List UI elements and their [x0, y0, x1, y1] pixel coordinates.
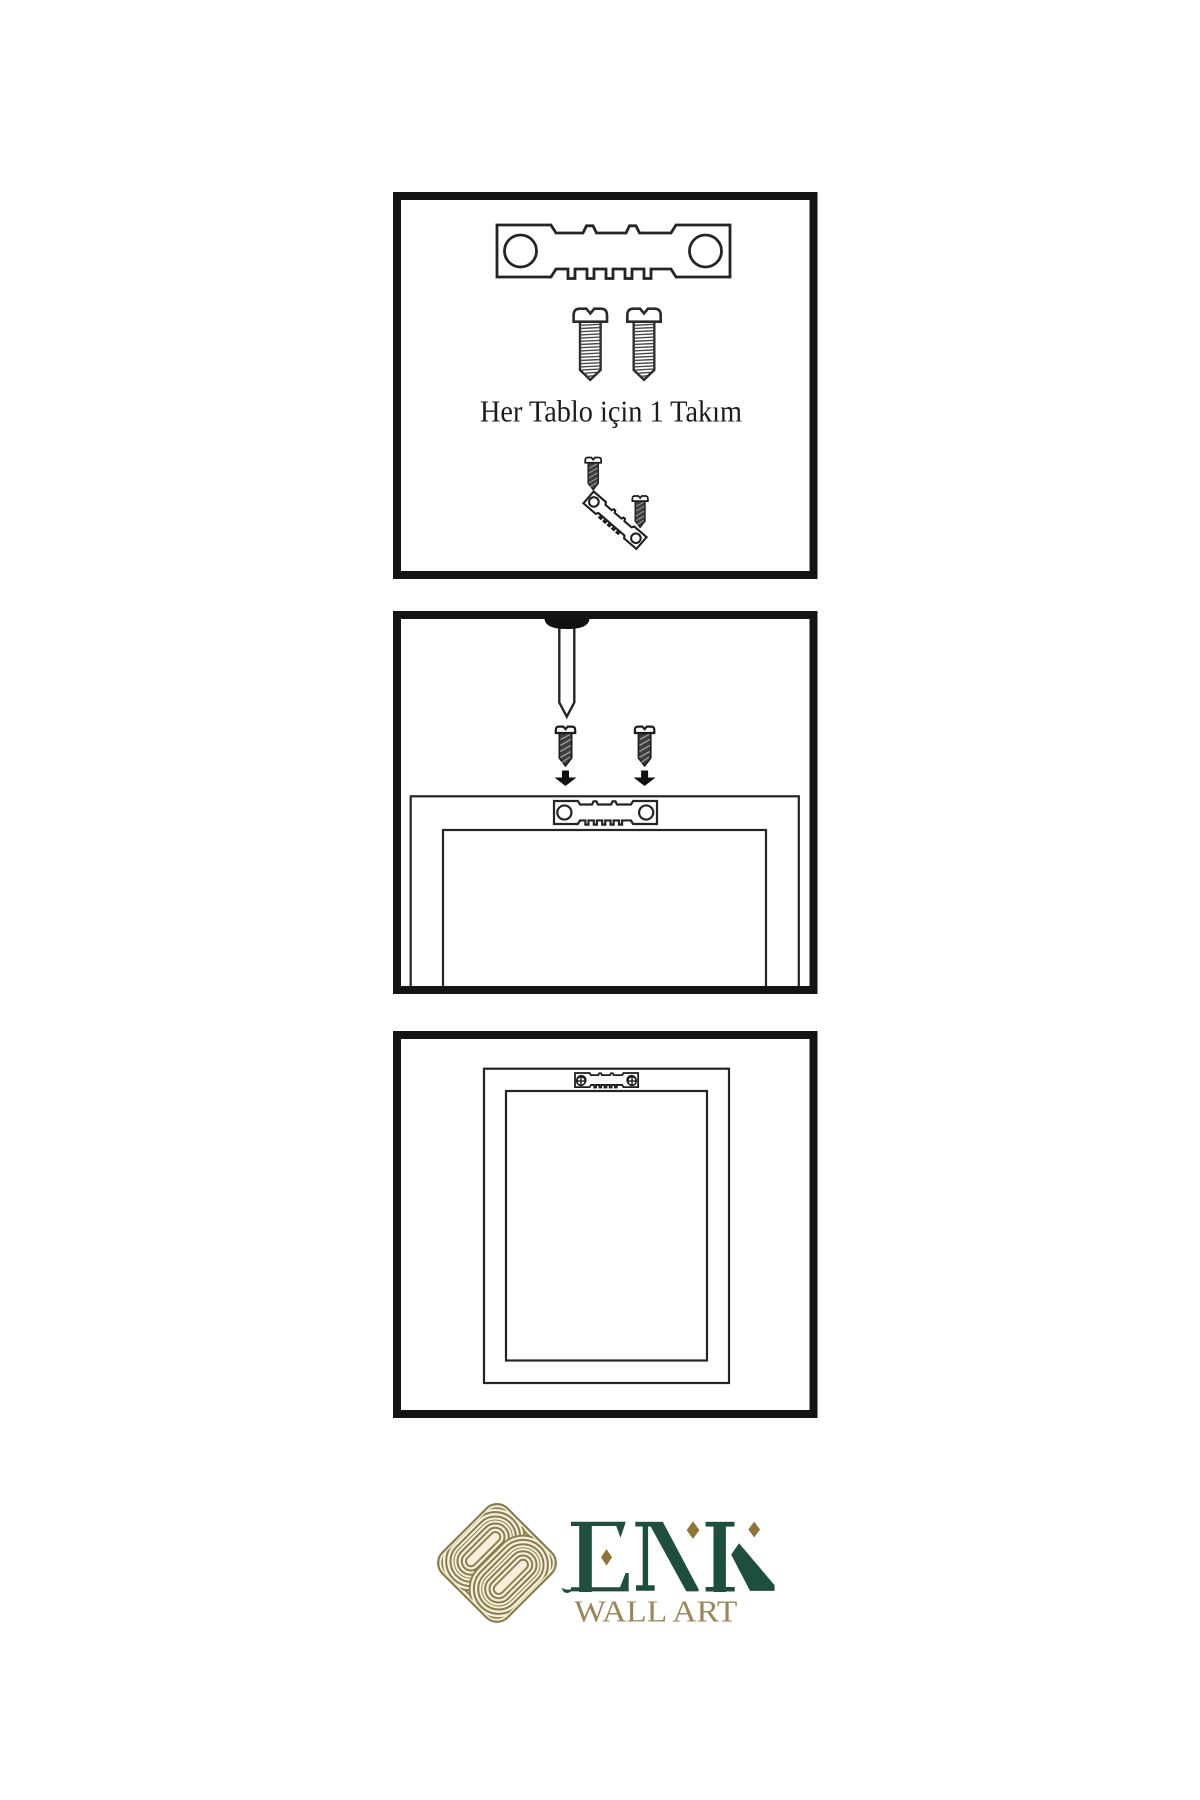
svg-text:WALL ART: WALL ART — [574, 1594, 737, 1629]
svg-text:Her Tablo için 1 Takım: Her Tablo için 1 Takım — [480, 394, 742, 429]
